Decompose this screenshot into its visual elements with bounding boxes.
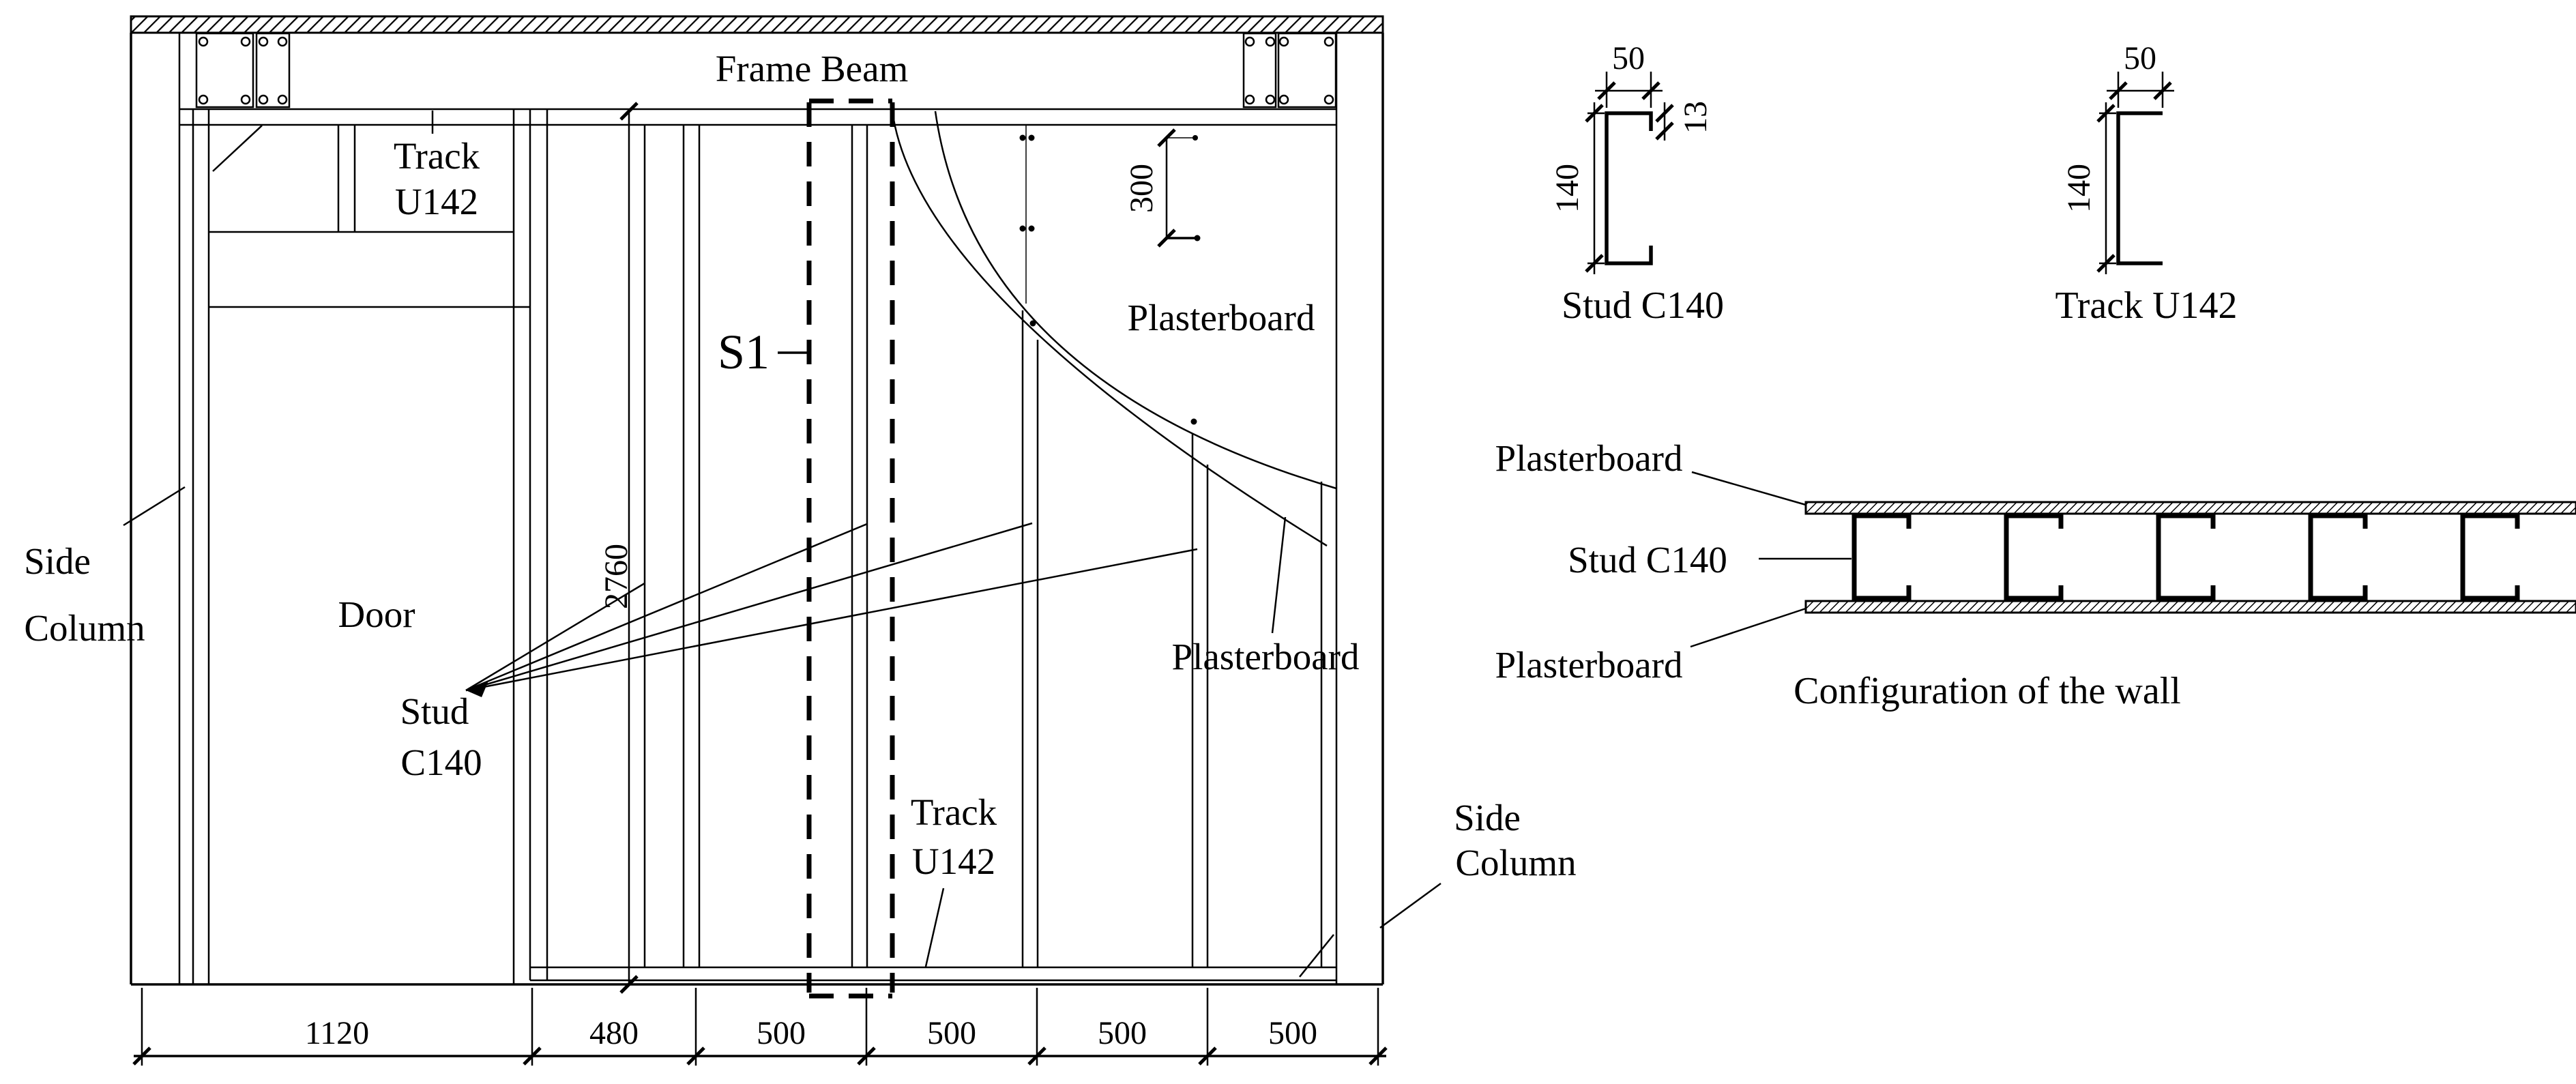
door-label: Door: [338, 594, 415, 635]
dim-500-a: 500: [757, 1015, 806, 1051]
wall-configuration-detail: Plasterboard Stud C140 Plasterboard Conf…: [1495, 437, 2576, 712]
section-marker-s1: S1: [718, 325, 770, 379]
config-caption: Configuration of the wall: [1794, 670, 2181, 712]
side-column-left-label-1: Side: [24, 540, 91, 582]
bottom-track: [131, 935, 1383, 984]
section-s1-box: S1: [718, 101, 892, 996]
stud-section-detail: 50 140 13 Stud C140: [1549, 40, 1724, 327]
dim-500-c: 500: [1098, 1015, 1147, 1051]
plasterboard-upper-label: Plasterboard: [1128, 297, 1315, 338]
leader-lines: [123, 487, 1441, 967]
side-column-left-member: [131, 33, 209, 984]
side-column-right-label-1: Side: [1454, 797, 1521, 838]
stud-section-caption: Stud C140: [1562, 284, 1724, 327]
side-column-right-label-2: Column: [1455, 842, 1576, 883]
track-section-detail: 50 140 Track U142: [2055, 40, 2237, 327]
config-leader-bottom: [1690, 609, 1806, 647]
door-header-framing: [209, 111, 530, 307]
wall-frame-drawing: 300 2760 S1: [0, 0, 2576, 1084]
track-section-width-dim: 50: [2124, 40, 2156, 76]
stud-section-height-dim: 140: [1549, 164, 1585, 213]
track-bottom-label-1: Track: [911, 791, 997, 833]
config-plasterboard-top-label: Plasterboard: [1495, 437, 1683, 479]
drawing-canvas: 300 2760 S1: [0, 0, 2576, 1084]
plasterboard-joint-and-screws: [1020, 125, 1197, 425]
stud-section-width-dim: 50: [1612, 40, 1645, 76]
top-track: [179, 109, 1336, 125]
beam-connection-plate-right: [1244, 33, 1336, 107]
beam-connection-plate-left: [196, 33, 289, 107]
side-column-left-label-2: Column: [24, 607, 145, 649]
section-studs: [1854, 516, 2517, 598]
screw-spacing-dimension: 300: [1124, 130, 1201, 246]
config-stud-label: Stud C140: [1568, 539, 1727, 581]
wall-elevation: 300 2760 S1: [24, 16, 1577, 1066]
height-dimension: 2760: [598, 103, 637, 993]
plasterboard-lower-label: Plasterboard: [1172, 636, 1360, 677]
config-leader-top: [1692, 472, 1806, 505]
dim-1120: 1120: [305, 1015, 369, 1051]
track-top-label-1: Track: [394, 135, 480, 177]
corner-brace-diagonal: [213, 126, 262, 171]
dim-480: 480: [589, 1015, 639, 1051]
ceiling-slab-hatch: [131, 16, 1383, 33]
corner-brace-diagonal-2: [1300, 935, 1334, 977]
stud-section-lip-dim: 13: [1678, 101, 1714, 134]
track-top-label-2: U142: [395, 181, 478, 222]
stud-label-2: C140: [400, 742, 482, 783]
plasterboard-top-strip: [1806, 502, 2576, 514]
dim-300: 300: [1124, 164, 1160, 213]
track-section-height-dim: 140: [2061, 164, 2097, 213]
side-column-right-member: [1336, 33, 1383, 984]
plasterboard-bottom-strip: [1806, 601, 2576, 613]
stud-label-1: Stud: [400, 690, 469, 732]
bottom-dimension-chain: 1120 480 500 500 500 500: [134, 988, 1386, 1066]
config-plasterboard-bottom-label: Plasterboard: [1495, 644, 1683, 686]
track-bottom-label-2: U142: [912, 840, 995, 882]
track-section-caption: Track U142: [2055, 284, 2237, 327]
dim-500-d: 500: [1268, 1015, 1317, 1051]
frame-beam-label: Frame Beam: [716, 48, 909, 89]
dim-500-b: 500: [927, 1015, 976, 1051]
